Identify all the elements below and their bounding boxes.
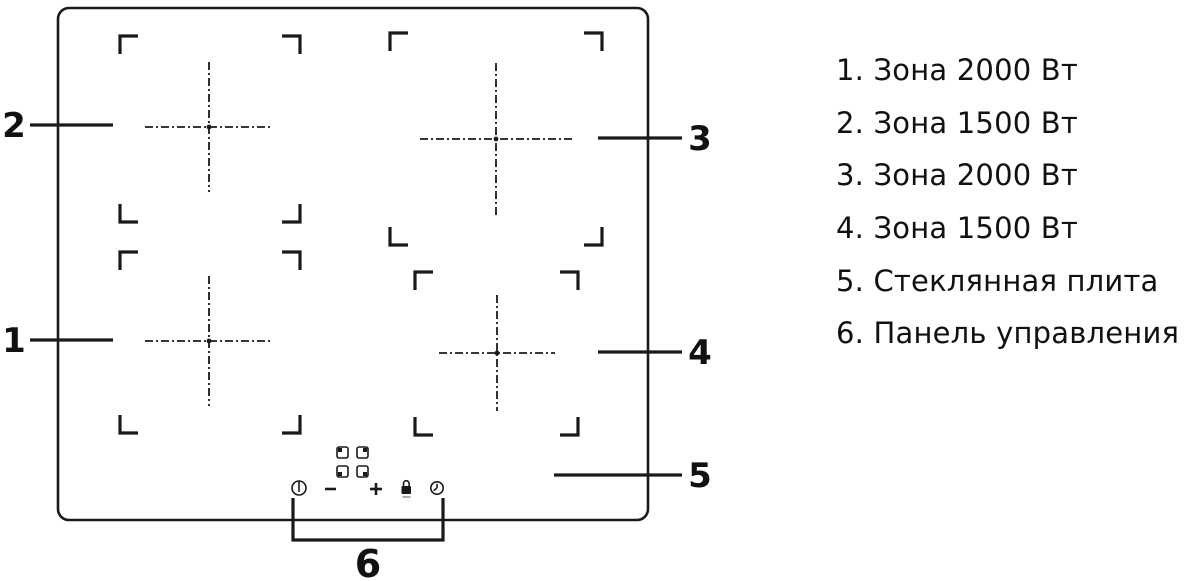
legend-item-4: 4. Зона 1500 Вт — [836, 202, 1179, 255]
cooktop-diagram: 2 1 3 4 5 6 — [0, 0, 740, 581]
zone-center-dot — [207, 339, 212, 344]
zone-select-keys — [337, 447, 368, 477]
cooking-zone-1 — [120, 252, 300, 433]
plus-key-icon — [370, 483, 382, 495]
legend-item-6: 6. Панель управления — [836, 307, 1179, 360]
cooking-zone-4 — [415, 272, 578, 435]
legend: 1. Зона 2000 Вт 2. Зона 1500 Вт 3. Зона … — [836, 44, 1179, 360]
zone-center-cross — [145, 276, 273, 406]
glass-plate-outline — [58, 8, 648, 520]
callout-5: 5 — [554, 456, 712, 496]
callout-number: 1 — [2, 321, 26, 361]
zone-center-dot — [494, 137, 499, 142]
callout-number: 2 — [2, 106, 26, 146]
callout-number: 6 — [355, 542, 381, 581]
cooktop-manual-figure: 2 1 3 4 5 6 1. Зона 2000 Вт 2. Зона 1500… — [0, 0, 1187, 581]
cooking-zone-2 — [120, 36, 300, 222]
timer-icon — [431, 482, 443, 494]
zone-center-cross — [439, 295, 555, 411]
legend-item-1: 1. Зона 2000 Вт — [836, 44, 1179, 97]
legend-item-2: 2. Зона 1500 Вт — [836, 97, 1179, 150]
callout-3: 3 — [598, 119, 712, 159]
callout-6: 6 — [293, 498, 443, 581]
control-panel — [292, 447, 443, 497]
zone-center-dot — [207, 125, 212, 130]
zone-center-dot — [495, 351, 500, 356]
cooking-zone-3 — [390, 33, 602, 245]
callout-number: 5 — [688, 456, 712, 496]
callout-4: 4 — [598, 333, 712, 373]
legend-item-3: 3. Зона 2000 Вт — [836, 149, 1179, 202]
legend-item-5: 5. Стеклянная плита — [836, 254, 1179, 307]
lock-icon — [402, 481, 412, 497]
zone-center-cross — [420, 63, 572, 215]
callout-number: 4 — [688, 333, 712, 373]
callout-number: 3 — [688, 119, 712, 159]
zone-center-cross — [145, 62, 273, 192]
power-icon — [292, 481, 306, 495]
